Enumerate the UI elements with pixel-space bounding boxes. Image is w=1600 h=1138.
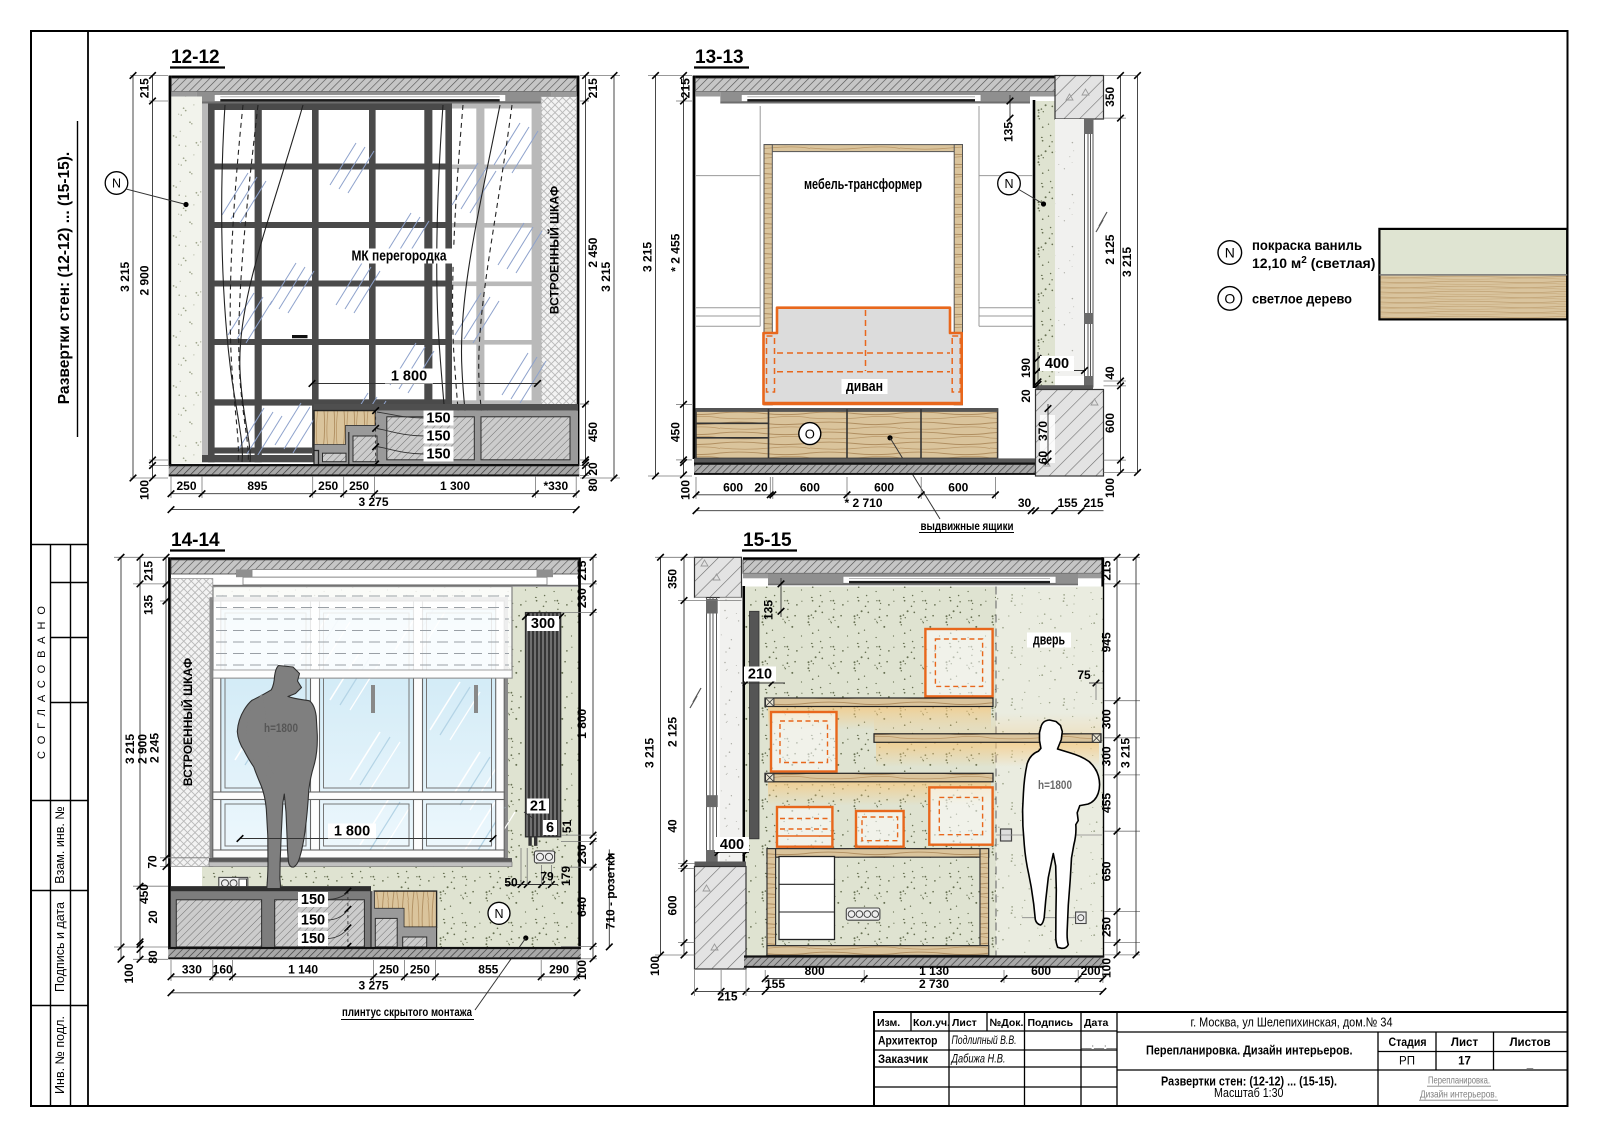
svg-text:N: N xyxy=(112,177,121,191)
svg-text:300: 300 xyxy=(1100,746,1114,766)
svg-text:дверь: дверь xyxy=(1033,633,1065,649)
svg-text:Изм.: Изм. xyxy=(877,1017,900,1029)
svg-text:215: 215 xyxy=(138,78,152,98)
svg-text:215: 215 xyxy=(575,560,589,580)
svg-text:Листов: Листов xyxy=(1509,1037,1550,1049)
svg-text:150: 150 xyxy=(426,411,450,427)
svg-text:150: 150 xyxy=(301,892,325,908)
svg-text:250: 250 xyxy=(176,479,196,493)
svg-text:100: 100 xyxy=(122,963,136,983)
svg-text:155: 155 xyxy=(765,977,785,991)
svg-text:2 900: 2 900 xyxy=(136,734,150,764)
svg-text:600: 600 xyxy=(874,480,894,494)
svg-text:150: 150 xyxy=(301,913,325,929)
svg-text:215: 215 xyxy=(586,78,600,98)
svg-text:N: N xyxy=(1004,177,1013,191)
svg-text:3 215: 3 215 xyxy=(123,734,137,764)
svg-text:100: 100 xyxy=(679,480,693,500)
svg-text:215: 215 xyxy=(679,78,693,98)
svg-text:600: 600 xyxy=(666,895,680,915)
svg-text:179: 179 xyxy=(559,866,573,886)
svg-text:800: 800 xyxy=(805,964,825,978)
svg-text:350: 350 xyxy=(1103,86,1117,106)
svg-text:_: _ xyxy=(1526,1058,1534,1070)
svg-text:№Док.: №Док. xyxy=(990,1017,1024,1029)
svg-text:O: O xyxy=(1224,291,1235,307)
svg-text:Дата: Дата xyxy=(1084,1017,1108,1029)
svg-text:250: 250 xyxy=(379,962,399,976)
svg-text:51: 51 xyxy=(560,820,574,834)
svg-text:МК перегородка: МК перегородка xyxy=(352,249,448,265)
svg-text:230: 230 xyxy=(575,588,589,608)
svg-text:2 125: 2 125 xyxy=(666,717,680,747)
svg-text:1 130: 1 130 xyxy=(919,964,949,978)
svg-text:Масштаб 1:30: Масштаб 1:30 xyxy=(1214,1086,1284,1100)
svg-text:Заказчик: Заказчик xyxy=(878,1054,928,1066)
svg-text:150: 150 xyxy=(426,429,450,445)
svg-text:Архитектор: Архитектор xyxy=(878,1036,938,1048)
svg-text:* 2 455: * 2 455 xyxy=(669,233,683,271)
svg-text:h=1800: h=1800 xyxy=(1038,778,1072,792)
svg-text:600: 600 xyxy=(800,480,820,494)
svg-text:1 140: 1 140 xyxy=(288,962,318,976)
svg-text:600: 600 xyxy=(723,480,743,494)
svg-text:160: 160 xyxy=(213,962,233,976)
svg-text:710 - розетки: 710 - розетки xyxy=(604,853,618,930)
svg-text:выдвижные ящики: выдвижные ящики xyxy=(921,521,1014,533)
svg-text:O: O xyxy=(805,427,815,442)
svg-text:200: 200 xyxy=(1081,964,1101,978)
svg-text:1 800: 1 800 xyxy=(575,708,589,738)
svg-text:3 275: 3 275 xyxy=(358,978,388,992)
svg-text:370: 370 xyxy=(1036,421,1050,441)
svg-text:h=1800: h=1800 xyxy=(264,721,298,735)
svg-text:600: 600 xyxy=(948,480,968,494)
svg-text:г. Москва, ул Шелепихинская, д: г. Москва, ул Шелепихинская, дом.№ 34 xyxy=(1191,1015,1393,1030)
svg-text:855: 855 xyxy=(478,962,498,976)
svg-text:__.__.__: __.__.__ xyxy=(1080,1039,1117,1049)
svg-text:3 215: 3 215 xyxy=(1119,738,1133,768)
svg-text:Кол.уч.: Кол.уч. xyxy=(913,1017,950,1029)
svg-text:14-14: 14-14 xyxy=(171,530,220,551)
svg-text:3 215: 3 215 xyxy=(118,261,132,291)
svg-text:100: 100 xyxy=(1100,958,1114,978)
svg-text:Развертки стен: (12-12) ... (1: Развертки стен: (12-12) ... (15-15). xyxy=(56,152,73,404)
svg-text:135: 135 xyxy=(142,595,156,615)
svg-text:300: 300 xyxy=(1100,709,1114,729)
svg-text:ВСТРОЕННЫЙ ШКАФ: ВСТРОЕННЫЙ ШКАФ xyxy=(547,186,562,314)
svg-text:2 125: 2 125 xyxy=(1103,234,1117,264)
svg-text:650: 650 xyxy=(1100,861,1114,881)
svg-text:Подпись: Подпись xyxy=(1028,1017,1074,1029)
svg-text:30: 30 xyxy=(1018,496,1032,510)
svg-text:3 215: 3 215 xyxy=(599,261,613,291)
svg-text:155: 155 xyxy=(1057,496,1077,510)
svg-text:СОГЛАСОВАНО: СОГЛАСОВАНО xyxy=(36,599,48,759)
svg-text:1 300: 1 300 xyxy=(440,479,470,493)
svg-text:Лист: Лист xyxy=(952,1017,977,1029)
svg-text:12-12: 12-12 xyxy=(171,47,220,68)
svg-text:покраска ваниль: покраска ваниль xyxy=(1252,237,1362,253)
svg-text:15-15: 15-15 xyxy=(743,530,792,551)
svg-text:мебель-трансформер: мебель-трансформер xyxy=(804,177,922,193)
svg-text:230: 230 xyxy=(575,844,589,864)
svg-text:215: 215 xyxy=(142,561,156,581)
svg-text:150: 150 xyxy=(301,931,325,947)
svg-text:250: 250 xyxy=(318,479,338,493)
svg-text:Стадия: Стадия xyxy=(1389,1037,1427,1049)
svg-text:диван: диван xyxy=(846,379,883,395)
svg-text:100: 100 xyxy=(1103,478,1117,498)
svg-text:N: N xyxy=(1225,245,1235,261)
svg-text:450: 450 xyxy=(669,422,683,442)
svg-text:250: 250 xyxy=(410,962,430,976)
svg-text:Дабижа Н.В.: Дабижа Н.В. xyxy=(950,1054,1006,1066)
svg-text:* 2 710: * 2 710 xyxy=(844,496,882,510)
svg-text:80: 80 xyxy=(146,950,160,964)
svg-text:300: 300 xyxy=(531,616,555,632)
svg-text:75: 75 xyxy=(1077,668,1091,682)
svg-text:455: 455 xyxy=(1100,793,1114,813)
svg-text:40: 40 xyxy=(666,819,680,833)
svg-text:1 800: 1 800 xyxy=(391,369,427,385)
svg-text:Перепланировка. Дизайн интерье: Перепланировка. Дизайн интерьеров. xyxy=(1146,1044,1353,1058)
svg-text:плинтус скрытого монтажа: плинтус скрытого монтажа xyxy=(342,1007,472,1019)
svg-text:Лист: Лист xyxy=(1451,1037,1479,1049)
svg-text:21: 21 xyxy=(530,799,546,815)
svg-text:РП: РП xyxy=(1399,1056,1415,1068)
svg-text:*330: *330 xyxy=(543,479,568,493)
svg-text:20: 20 xyxy=(754,480,768,494)
svg-text:3 215: 3 215 xyxy=(643,738,657,768)
svg-text:150: 150 xyxy=(426,447,450,463)
svg-text:3 215: 3 215 xyxy=(1120,247,1134,277)
svg-text:350: 350 xyxy=(666,569,680,589)
svg-text:290: 290 xyxy=(549,962,569,976)
svg-text:2 730: 2 730 xyxy=(919,977,949,991)
svg-text:135: 135 xyxy=(1002,122,1016,142)
svg-text:Перепланировка.: Перепланировка. xyxy=(1428,1075,1490,1087)
svg-text:Инв. № подл.: Инв. № подл. xyxy=(53,1016,67,1094)
svg-text:250: 250 xyxy=(349,479,369,493)
svg-text:600: 600 xyxy=(1103,413,1117,433)
svg-text:100: 100 xyxy=(138,480,152,500)
svg-text:Взам. инв. №: Взам. инв. № xyxy=(53,806,67,883)
svg-text:210: 210 xyxy=(748,667,772,683)
svg-text:135: 135 xyxy=(762,600,776,620)
svg-text:70: 70 xyxy=(146,855,160,869)
svg-text:40: 40 xyxy=(1103,366,1117,380)
svg-text:945: 945 xyxy=(1100,632,1114,652)
svg-text:Подлипный В.В.: Подлипный В.В. xyxy=(952,1035,1017,1047)
svg-text:190: 190 xyxy=(1019,358,1033,378)
svg-text:17: 17 xyxy=(1458,1056,1471,1068)
svg-text:Подпись и дата: Подпись и дата xyxy=(53,902,67,992)
svg-text:20: 20 xyxy=(146,910,160,924)
svg-text:215: 215 xyxy=(1100,560,1114,580)
svg-text:450: 450 xyxy=(586,422,600,442)
svg-text:215: 215 xyxy=(1083,496,1103,510)
svg-text:1 800: 1 800 xyxy=(334,824,370,840)
svg-text:250: 250 xyxy=(1100,917,1114,937)
svg-text:79: 79 xyxy=(540,870,554,884)
svg-text:13-13: 13-13 xyxy=(695,47,744,68)
svg-text:12,10 м2 (светлая): 12,10 м2 (светлая) xyxy=(1252,255,1375,272)
svg-text:2 450: 2 450 xyxy=(586,237,600,267)
svg-text:60: 60 xyxy=(1036,451,1050,465)
svg-text:N: N xyxy=(494,907,503,921)
svg-text:2 900: 2 900 xyxy=(138,265,152,295)
svg-text:895: 895 xyxy=(247,479,267,493)
svg-text:400: 400 xyxy=(720,837,744,853)
svg-text:640: 640 xyxy=(575,896,589,916)
svg-text:Дизайн интерьеров.: Дизайн интерьеров. xyxy=(1420,1089,1497,1101)
svg-text:3 275: 3 275 xyxy=(358,495,388,509)
svg-text:50: 50 xyxy=(504,876,518,890)
svg-text:3 215: 3 215 xyxy=(641,242,655,272)
svg-text:330: 330 xyxy=(182,962,202,976)
svg-text:215: 215 xyxy=(717,990,737,1004)
svg-text:450: 450 xyxy=(137,884,151,904)
svg-text:6: 6 xyxy=(546,820,554,836)
svg-text:100: 100 xyxy=(648,956,662,976)
svg-text:2 245: 2 245 xyxy=(148,733,162,763)
svg-text:20: 20 xyxy=(1019,389,1033,403)
svg-text:светлое дерево: светлое дерево xyxy=(1252,291,1352,307)
svg-text:400: 400 xyxy=(1045,356,1069,372)
svg-text:ВСТРОЕННЫЙ ШКАФ: ВСТРОЕННЫЙ ШКАФ xyxy=(180,658,195,786)
svg-text:600: 600 xyxy=(1031,964,1051,978)
svg-text:80: 80 xyxy=(586,478,600,492)
